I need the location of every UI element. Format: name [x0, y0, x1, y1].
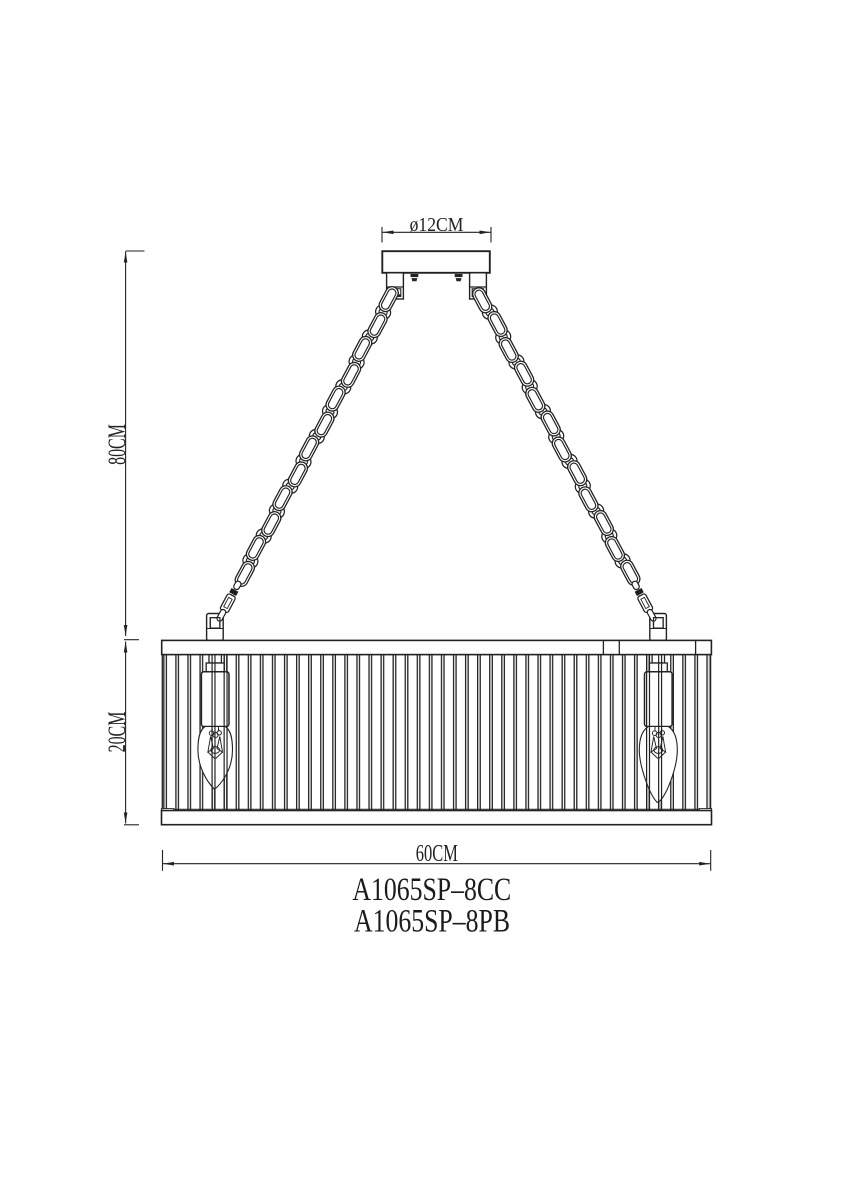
svg-text:A1065SP–8CC: A1065SP–8CC	[352, 872, 511, 907]
svg-text:A1065SP–8PB: A1065SP–8PB	[354, 904, 510, 939]
svg-text:ø12CM: ø12CM	[410, 214, 464, 236]
svg-text:80CM: 80CM	[103, 424, 132, 465]
svg-text:60CM: 60CM	[416, 841, 458, 867]
svg-text:20CM: 20CM	[103, 711, 132, 752]
